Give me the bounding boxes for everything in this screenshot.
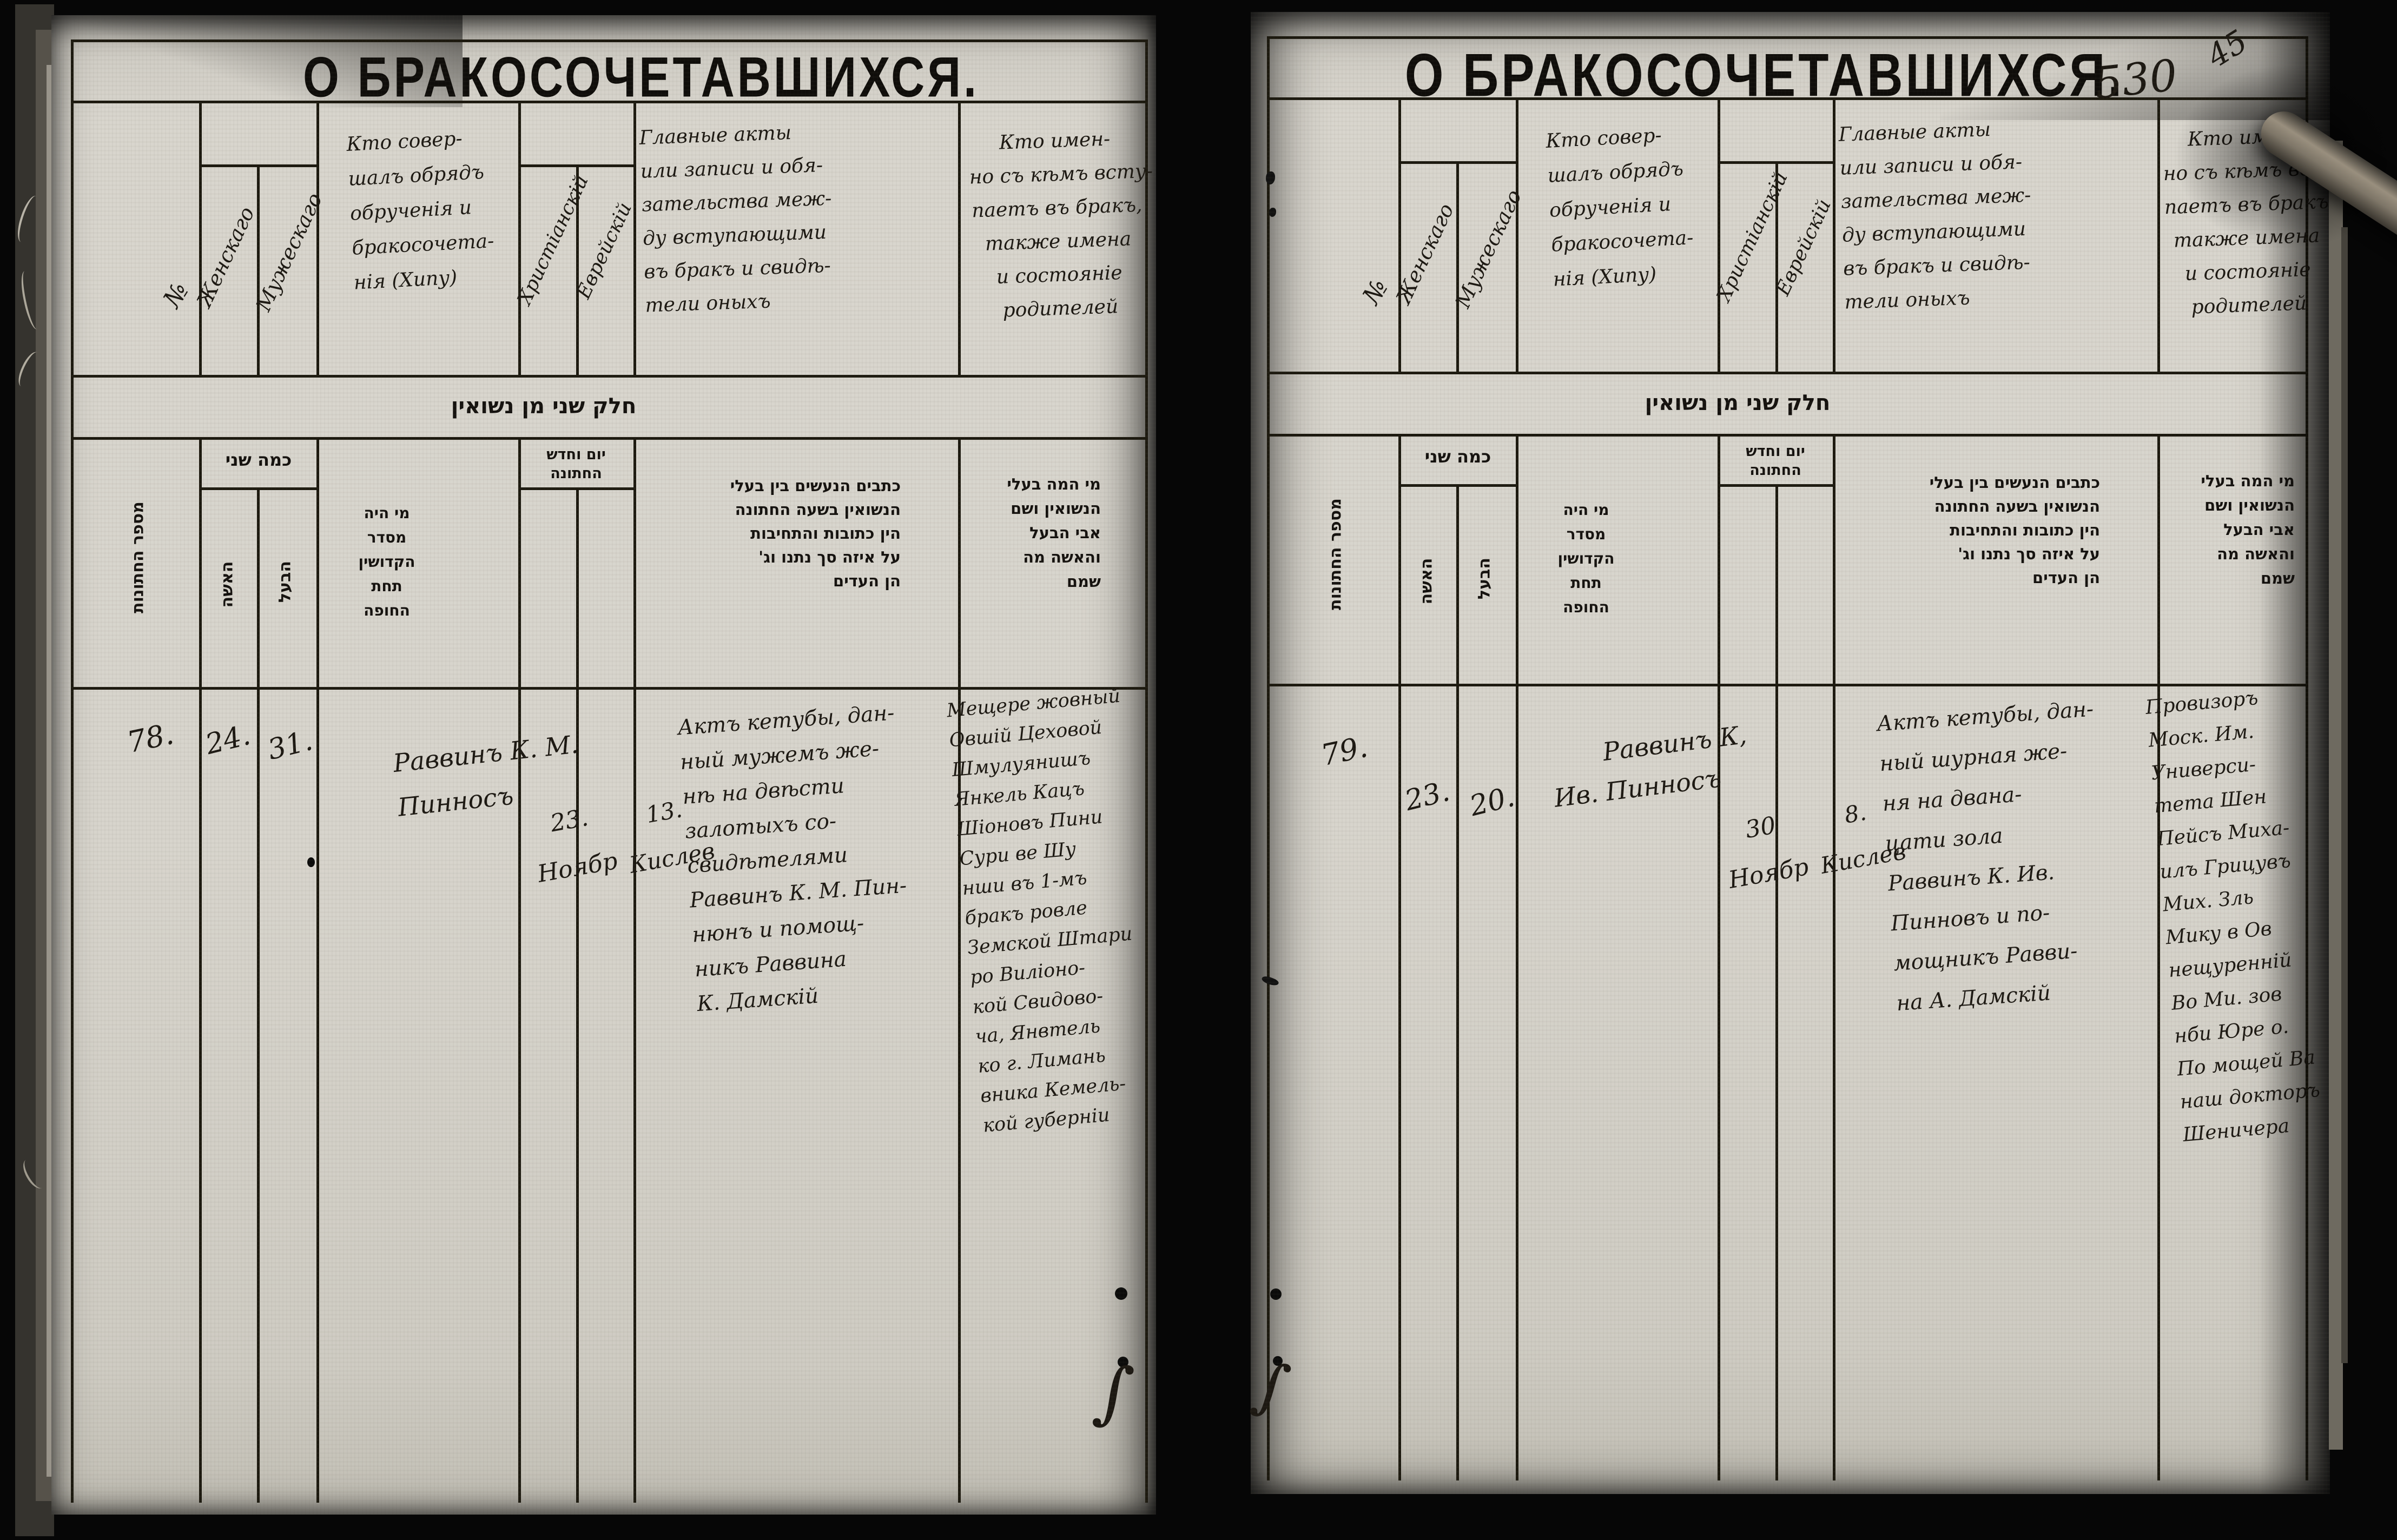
book-gutter [1146,3,1260,1537]
scanned-registry-photo: О БРАКОСОЧЕТАВШИХСЯ. № Женскаго Мужескаг… [0,0,2397,1540]
grid-line [1398,434,1401,1480]
grid-line [199,487,319,490]
grid-line [257,164,260,375]
grid-line [1267,36,1270,1480]
text-line: הין כתובות והתחיבות [641,521,901,545]
grid-line [199,164,319,167]
entry-acts-text: Актъ кетубы, дан- ный шурная же- ня на д… [1876,685,2173,1024]
grid-line [633,101,636,375]
col-jewish-date-label: Еврейскій [571,197,637,305]
hebrew-section-band: חלק שני מן נשואין [425,394,663,419]
hebrew-number-label: מספר החתונות [129,479,148,636]
entry-number: 78. [124,717,176,759]
grid-line [518,487,636,490]
text-line: יום וחדש [1721,442,1830,461]
ink-flourish: ∫ [1090,1349,1138,1436]
text-line: והאשה מה [971,545,1101,570]
hebrew-bride-label: האשה [218,533,237,636]
col-officiant-header: Кто совер- шалъ обрядъ обрученія и брако… [346,119,517,300]
text-line: כתבים הנעשים בין בעלי [1840,471,2100,494]
grid-line [71,39,74,1503]
text-line: הנשואין בשעה החתונה [1840,494,2100,518]
grid-line [71,437,1147,440]
grid-line [576,487,579,1503]
hebrew-number-label: מספר החתונות [1326,476,1345,633]
text-line: החתונה [1721,461,1830,480]
grid-line [1398,97,1401,372]
text-line: также имена [971,222,1145,261]
text-line: הנשואין ושם [971,497,1101,521]
col-bride-age-label: Женскаго [192,203,259,311]
grid-line [71,39,1147,42]
grid-line [71,375,1147,378]
col-acts-header: Главные акты или записи и обя- зательств… [1838,109,2116,319]
col-acts-header: Главные акты или записи и обя- зательств… [639,112,916,322]
col-bride-age-label: Женскаго [1391,200,1458,308]
hebrew-acts-header: כתבים הנעשים בין בעלי הנשואין בשעה החתונ… [1840,471,2100,590]
text-line: Кто имен- [968,122,1142,161]
grid-line [518,164,636,167]
text-line: על איזה סך נתנו וג' [1840,542,2100,566]
hebrew-officiant-header: מי היה מסדר הקדושין תחת החופה [333,501,441,623]
ink-blot [1266,171,1275,184]
col-christian-date-label: Христіанскій [513,201,579,308]
text-line: паетъ въ бракъ, [970,188,1144,228]
grid-line [1456,484,1459,1480]
grid-line [199,437,202,1503]
text-line: אבי הבעל [971,521,1101,545]
hebrew-groom-label: הבעל [276,531,295,633]
right-page: О БРАКОСОЧЕТАВШИХСЯ. 530 45 № Женскаго М… [1251,12,2330,1494]
entry-number: 79. [1318,730,1370,772]
text-line: הקדושין [1532,546,1640,571]
grid-line [1775,484,1778,1480]
text-line: החופה [333,598,441,623]
text-line: על איזה סך נתנו וג' [641,545,901,569]
hebrew-acts-header: כתבים הנעשים בין בעלי הנשואין בשעה החתונ… [641,474,901,593]
grid-line [1398,161,1518,164]
text-line: החתונה [522,464,630,483]
text-line: מי המה בעלי [971,472,1101,497]
grid-line [1718,97,1720,372]
text-line: הן העדים [1840,566,2100,590]
col-groom-age-label: Мужескаго [252,207,319,315]
entry-bride-age: 23. [1402,775,1453,817]
page-stack-edge [2341,227,2348,1363]
text-line: החופה [1532,595,1640,619]
hebrew-who-header: מי המה בעלי הנשואין ושם אבי הבעל והאשה מ… [971,472,1101,594]
col-christian-date-label: Христіанскій [1713,197,1779,305]
text-line: כתבים הנעשים בין בעלי [641,474,901,498]
page-title: О БРАКОСОЧЕТАВШИХСЯ. [230,45,1052,110]
grid-line [199,101,202,375]
ink-flourish: ∫ [1247,1348,1296,1426]
text-line: מי היה [333,501,441,525]
grid-line [1267,372,2306,374]
text-line: מי היה [1532,498,1640,522]
entry-bride-age: 24. [202,719,254,761]
text-line: מסדר [333,525,441,550]
grid-line [2157,97,2160,372]
hebrew-ages-header: כמה שני [1406,446,1509,467]
hebrew-bride-label: האשה [1417,530,1436,633]
hebrew-officiant-header: מי היה מסדר הקדושין תחת החופה [1532,498,1640,619]
grid-line [633,437,636,1503]
hebrew-groom-label: הבעל [1475,527,1494,630]
hebrew-ages-header: כמה שני [207,450,310,470]
entry-groom-age: 20. [1467,781,1518,823]
grid-line [71,687,1147,690]
grid-line [1833,97,1835,372]
col-who-header: Кто имен- но съ кѣмъ всту- паетъ въ брак… [968,122,1148,329]
grid-line [1833,434,1835,1480]
ink-blot [1261,975,1280,987]
col-officiant-header: Кто совер- шалъ обрядъ обрученія и брако… [1545,116,1716,297]
grid-line [1516,434,1518,1480]
page-number: 530 [2092,50,2180,108]
grid-line [518,101,521,375]
grid-line [316,101,319,375]
text-line: תחת [1532,571,1640,595]
grid-line [1456,161,1459,372]
hebrew-section-band: חלק שני מן נשואין [1619,391,1857,415]
col-groom-age-label: Мужескаго [1451,203,1518,312]
entry-officiant-line2: Ив. Пинносъ [1553,763,1723,812]
grid-line [257,487,260,1503]
grid-line [518,437,521,1503]
grid-line [1267,36,2306,39]
grid-line [316,437,319,1503]
hebrew-date-header: יום וחדש החתונה [522,445,630,483]
text-line: הקדושין [333,550,441,574]
text-line: но съ кѣмъ всту- [969,155,1143,194]
text-line: יום וחדש [522,445,630,464]
entry-groom-age: 31. [265,724,316,766]
grid-line [1267,434,2306,437]
grid-line [1718,434,1720,1480]
grid-line [1718,161,1835,164]
entry-officiant-line1: Раввинъ К, [1601,720,1748,766]
text-line: הין כתובות והתחיבות [1840,518,2100,542]
page-title: О БРАКОСОЧЕТАВШИХСЯ. [1386,41,2143,110]
hebrew-date-header: יום וחדש החתונה [1721,442,1830,480]
text-line: שמם [971,570,1101,594]
grid-line [958,101,961,375]
grid-line [1516,97,1518,372]
text-line: מסדר [1532,522,1640,546]
text-line: הנשואין בשעה החתונה [641,498,901,521]
grid-line [1718,484,1835,487]
left-page: О БРАКОСОЧЕТАВШИХСЯ. № Женскаго Мужескаг… [51,15,1156,1515]
ink-dot [1115,1287,1127,1300]
entry-acts-text: Актъ кетубы, дан- ный мужемъ же- нѣ на д… [677,692,974,1022]
ink-dot [1270,1288,1282,1300]
col-jewish-date-label: Еврейскій [1771,194,1837,301]
text-line: родителей [973,289,1147,328]
text-line: הן העדים [641,569,901,593]
text-line: תחת [333,574,441,598]
ink-blot [1269,208,1276,217]
grid-line [1398,484,1518,487]
text-line: и состояніе [972,255,1146,295]
ink-dot [307,857,315,867]
